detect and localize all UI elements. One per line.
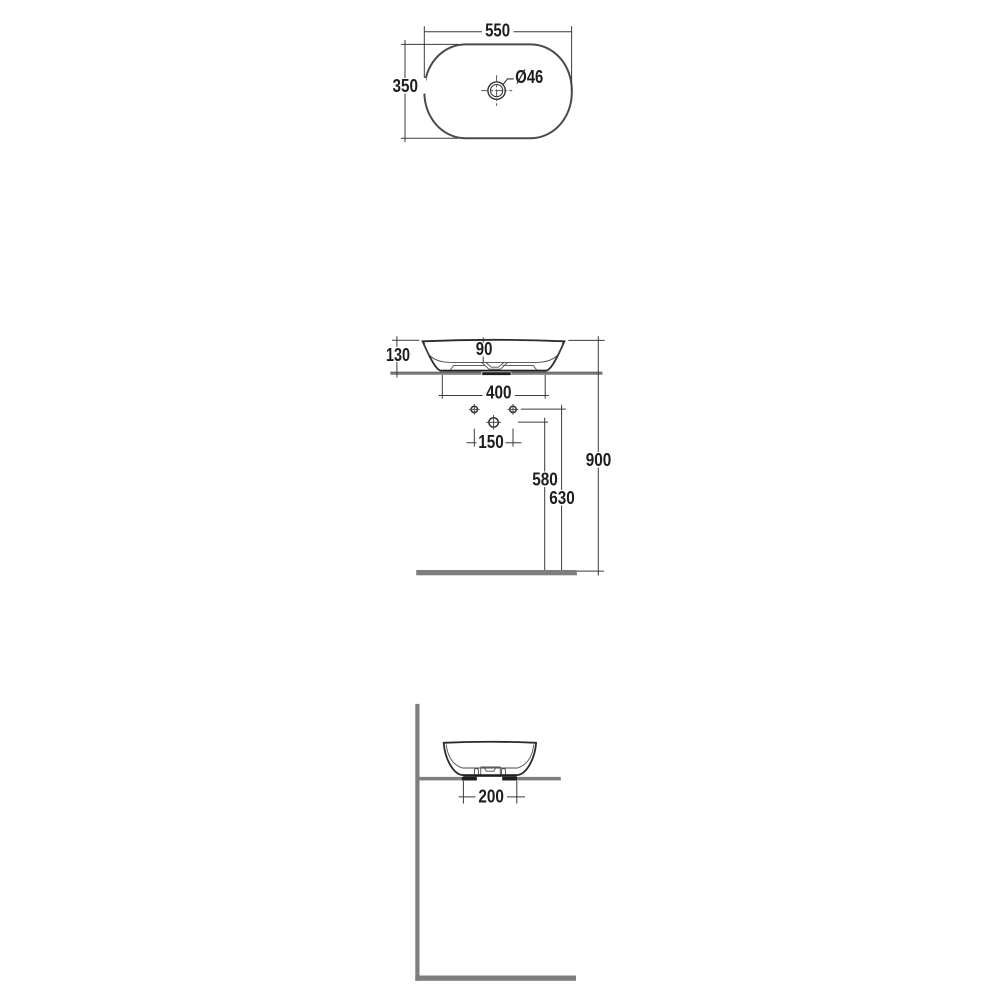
svg-text:350: 350	[393, 76, 419, 96]
svg-text:580: 580	[532, 469, 558, 489]
svg-text:130: 130	[386, 345, 410, 365]
svg-text:400: 400	[486, 383, 512, 403]
svg-text:200: 200	[478, 787, 504, 807]
svg-text:900: 900	[586, 450, 612, 470]
svg-text:150: 150	[478, 432, 504, 452]
svg-text:Ø46: Ø46	[515, 67, 543, 87]
svg-text:630: 630	[549, 488, 575, 508]
svg-text:90: 90	[476, 339, 493, 359]
svg-text:550: 550	[485, 21, 510, 41]
